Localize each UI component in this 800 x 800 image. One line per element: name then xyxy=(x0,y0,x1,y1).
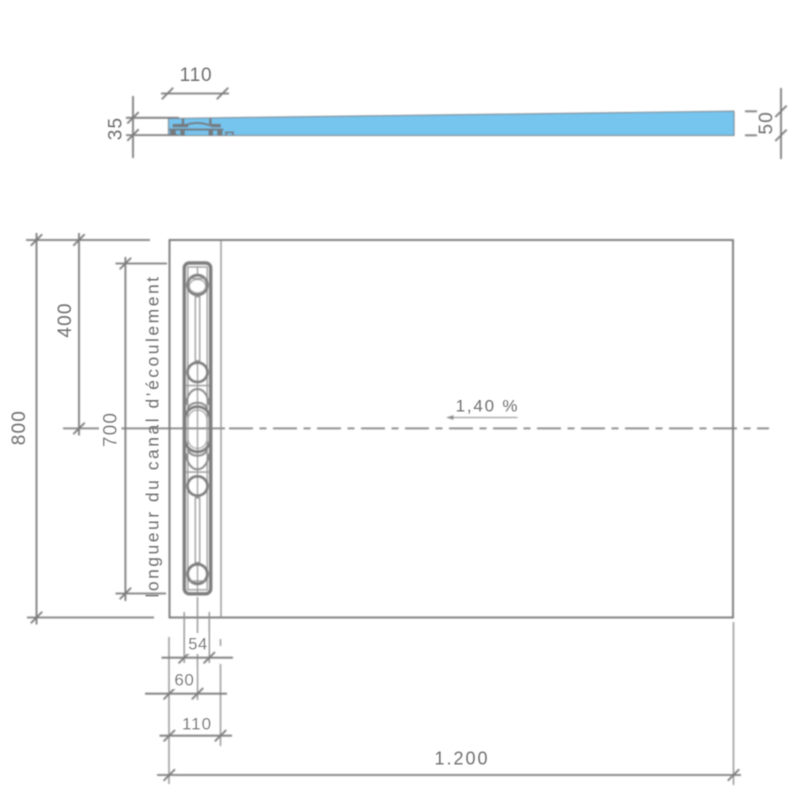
svg-text:longueur du canal d’écoulement: longueur du canal d’écoulement xyxy=(143,274,163,597)
svg-text:110: 110 xyxy=(182,715,212,734)
svg-text:1.200: 1.200 xyxy=(434,749,489,769)
svg-text:110: 110 xyxy=(180,65,213,86)
svg-text:60: 60 xyxy=(174,671,194,690)
svg-text:35: 35 xyxy=(105,117,126,141)
svg-text:400: 400 xyxy=(55,302,76,337)
svg-text:54: 54 xyxy=(188,636,208,654)
svg-text:800: 800 xyxy=(9,410,30,445)
svg-text:50: 50 xyxy=(756,111,777,135)
svg-text:700: 700 xyxy=(100,412,121,447)
svg-text:1,40 %: 1,40 % xyxy=(456,397,520,416)
